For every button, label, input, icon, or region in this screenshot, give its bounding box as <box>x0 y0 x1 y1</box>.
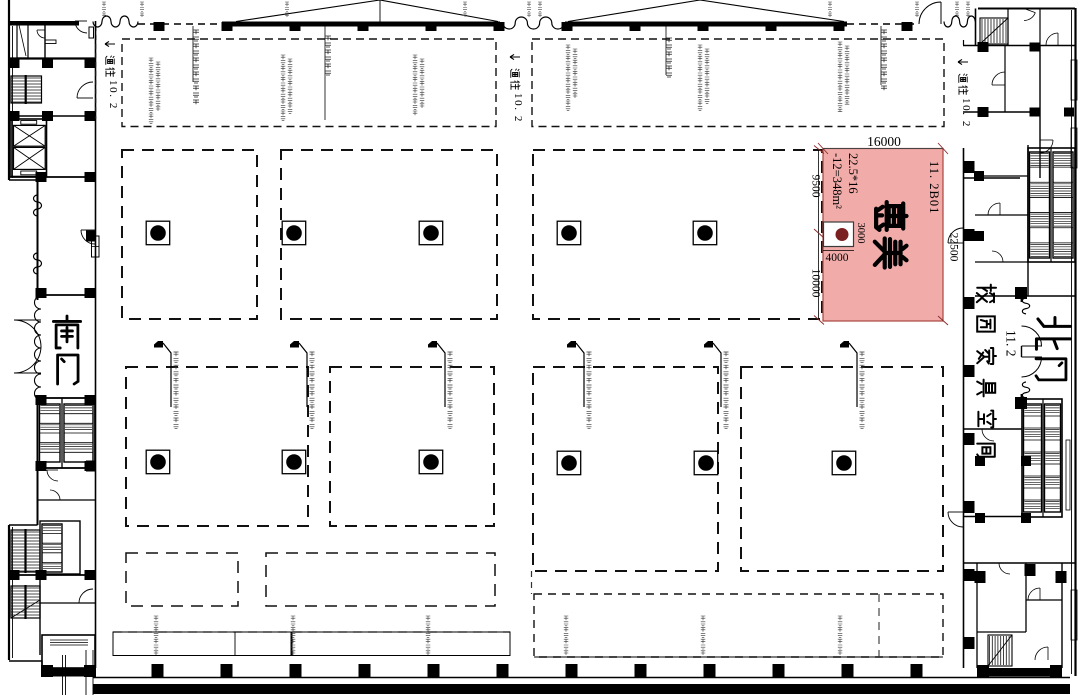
svg-text:11. 2B01: 11. 2B01 <box>927 161 941 214</box>
svg-text:10. 2: 10. 2 <box>107 80 119 110</box>
svg-text:11. 2: 11. 2 <box>1004 330 1019 357</box>
svg-text:4000: 4000 <box>826 252 849 264</box>
svg-text:3000: 3000 <box>855 223 866 244</box>
svg-text:10. 2: 10. 2 <box>512 93 524 123</box>
svg-text:-12=348m²: -12=348m² <box>830 153 844 209</box>
svg-text:22500: 22500 <box>948 233 960 262</box>
svg-text:16000: 16000 <box>867 134 901 149</box>
svg-text:9500: 9500 <box>810 175 822 198</box>
svg-text:10000: 10000 <box>810 269 822 298</box>
svg-text:22.5*16: 22.5*16 <box>846 153 860 194</box>
svg-text:10. 2: 10. 2 <box>960 98 972 128</box>
